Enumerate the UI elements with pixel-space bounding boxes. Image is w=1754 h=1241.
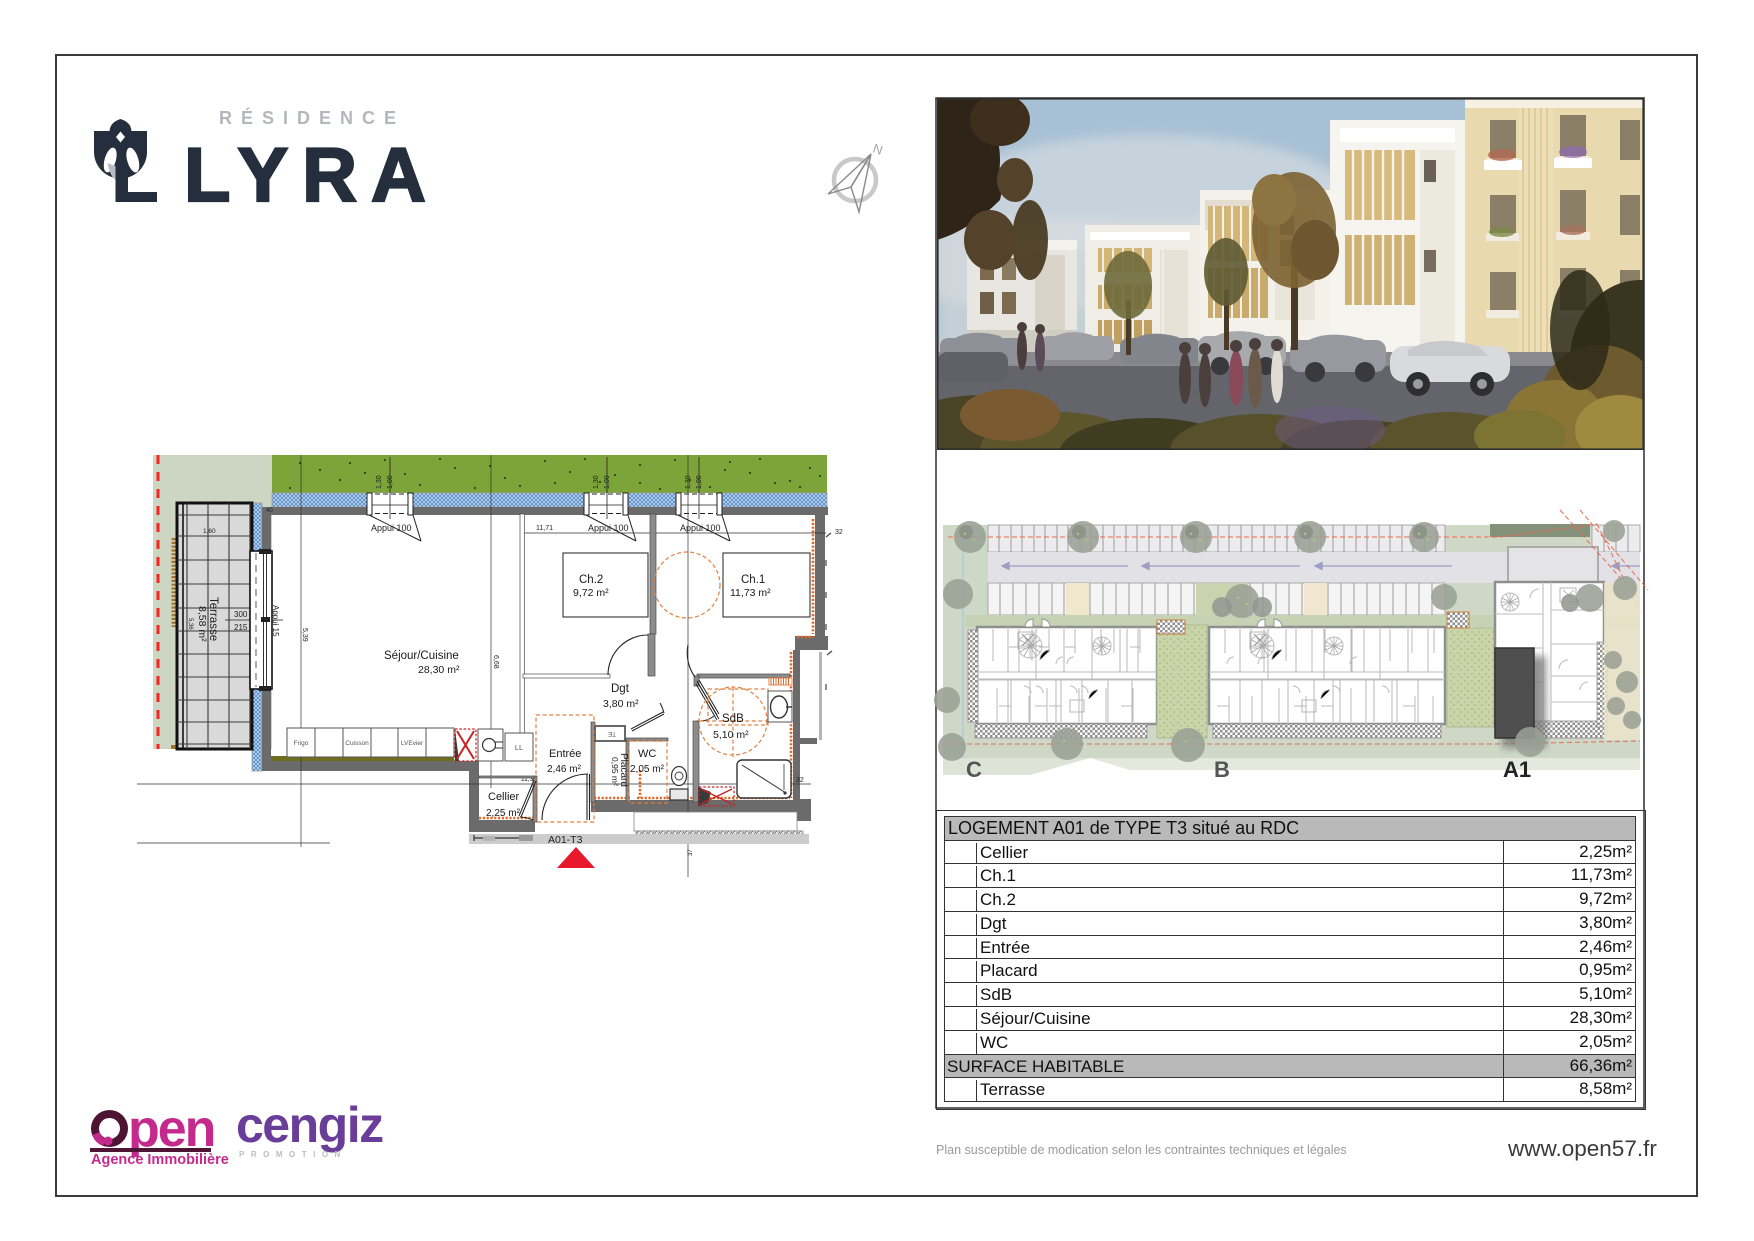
svg-text:Appui 100: Appui 100 bbox=[680, 523, 721, 533]
svg-text:215: 215 bbox=[234, 623, 248, 632]
svg-text:300: 300 bbox=[234, 610, 248, 619]
svg-text:32: 32 bbox=[835, 529, 843, 536]
svg-text:1,00: 1,00 bbox=[387, 475, 394, 489]
svg-text:B: B bbox=[1214, 757, 1230, 782]
svg-text:Cellier: Cellier bbox=[488, 791, 520, 803]
svg-text:11,73 m²: 11,73 m² bbox=[730, 587, 771, 599]
svg-text:32: 32 bbox=[796, 777, 804, 784]
svg-text:2,46 m²: 2,46 m² bbox=[547, 764, 582, 775]
svg-text:1,30: 1,30 bbox=[685, 475, 692, 489]
svg-text:1,00: 1,00 bbox=[696, 475, 703, 489]
svg-text:2,05 m²: 2,05 m² bbox=[630, 764, 665, 775]
svg-text:40: 40 bbox=[266, 508, 273, 514]
svg-text:Dgt: Dgt bbox=[611, 683, 630, 695]
svg-text:1,00: 1,00 bbox=[604, 475, 611, 489]
svg-text:1,30: 1,30 bbox=[376, 475, 383, 489]
svg-text:Séjour/Cuisine: Séjour/Cuisine bbox=[384, 650, 459, 662]
svg-text:5,10 m²: 5,10 m² bbox=[713, 729, 749, 741]
svg-text:Ch.2: Ch.2 bbox=[579, 574, 603, 586]
svg-text:A01-T3: A01-T3 bbox=[548, 834, 583, 846]
svg-text:SdB: SdB bbox=[722, 713, 744, 725]
svg-text:Terrasse: Terrasse bbox=[207, 597, 219, 641]
svg-text:6,68: 6,68 bbox=[492, 655, 499, 669]
svg-text:Ch.1: Ch.1 bbox=[741, 574, 765, 586]
svg-text:Appui 100: Appui 100 bbox=[371, 523, 412, 533]
svg-text:8,58 m²: 8,58 m² bbox=[196, 606, 208, 642]
svg-text:5,36: 5,36 bbox=[187, 618, 193, 630]
svg-text:37: 37 bbox=[688, 849, 694, 856]
svg-text:1,30: 1,30 bbox=[593, 475, 600, 489]
svg-text:2,25 m²: 2,25 m² bbox=[486, 808, 521, 819]
svg-text:28,30 m²: 28,30 m² bbox=[418, 664, 460, 676]
svg-text:Frigo: Frigo bbox=[294, 740, 309, 747]
svg-text:11,71: 11,71 bbox=[536, 525, 553, 532]
svg-text:N: N bbox=[871, 141, 885, 158]
svg-text:9,72 m²: 9,72 m² bbox=[573, 587, 609, 599]
svg-text:3,80 m²: 3,80 m² bbox=[603, 698, 639, 710]
svg-text:1,60: 1,60 bbox=[203, 528, 216, 535]
svg-text:TE: TE bbox=[608, 730, 616, 736]
svg-text:Cuisson: Cuisson bbox=[345, 740, 369, 747]
svg-text:Appui 100: Appui 100 bbox=[588, 523, 629, 533]
svg-text:LL: LL bbox=[515, 743, 523, 752]
svg-text:A1: A1 bbox=[1503, 757, 1531, 782]
svg-text:0,95 m²: 0,95 m² bbox=[610, 757, 620, 786]
svg-text:WC: WC bbox=[638, 748, 656, 760]
svg-text:5,39: 5,39 bbox=[301, 628, 308, 642]
svg-text:Entrée: Entrée bbox=[549, 748, 581, 760]
svg-text:C: C bbox=[966, 757, 982, 782]
svg-text:LVEvier: LVEvier bbox=[401, 740, 424, 747]
